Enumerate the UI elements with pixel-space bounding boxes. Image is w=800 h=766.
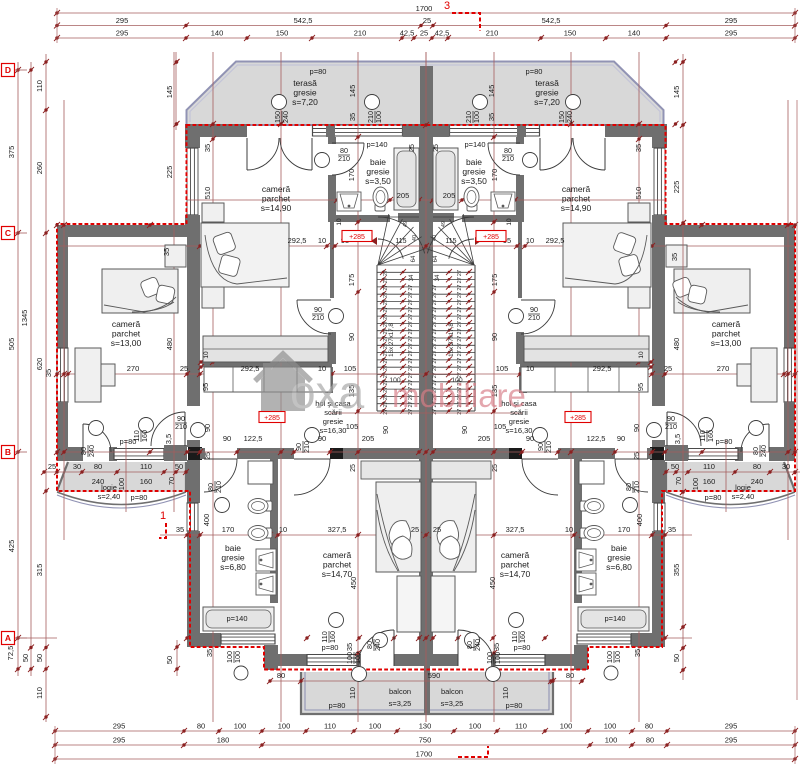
svg-text:25: 25 (350, 464, 357, 472)
svg-text:p=80: p=80 (514, 643, 531, 652)
svg-text:150: 150 (564, 29, 577, 38)
svg-text:27: 27 (383, 270, 389, 276)
svg-text:p=140: p=140 (366, 140, 387, 149)
svg-text:gresie: gresie (535, 88, 558, 98)
svg-text:480: 480 (672, 338, 681, 351)
svg-text:210: 210 (632, 481, 641, 493)
svg-text:80: 80 (645, 722, 653, 731)
svg-text:35: 35 (633, 649, 642, 657)
svg-text:s=14,70: s=14,70 (322, 569, 353, 579)
svg-text:80: 80 (646, 736, 654, 745)
svg-text:90: 90 (526, 434, 534, 443)
svg-text:327,5: 327,5 (506, 525, 525, 534)
svg-text:parchet: parchet (112, 329, 141, 339)
svg-text:25: 25 (433, 525, 441, 534)
svg-text:170: 170 (222, 525, 235, 534)
svg-text:150: 150 (276, 29, 289, 38)
svg-text:27: 27 (408, 365, 414, 371)
svg-text:210: 210 (354, 29, 367, 38)
svg-text:80: 80 (277, 671, 285, 680)
svg-text:27: 27 (408, 328, 414, 334)
svg-text:cameră: cameră (262, 184, 291, 194)
svg-text:s=14,70: s=14,70 (500, 569, 531, 579)
svg-text:40: 40 (432, 235, 438, 241)
svg-text:180: 180 (217, 736, 230, 745)
svg-text:parchet: parchet (323, 560, 352, 570)
svg-text:42,5: 42,5 (435, 29, 450, 38)
svg-text:C: C (5, 228, 11, 238)
svg-text:A: A (5, 633, 11, 643)
svg-text:90: 90 (203, 424, 212, 432)
svg-text:p=80: p=80 (329, 701, 346, 710)
svg-text:510: 510 (203, 187, 212, 200)
svg-text:40: 40 (412, 235, 418, 241)
svg-text:25: 25 (492, 464, 499, 472)
svg-text:205: 205 (443, 191, 456, 200)
svg-text:gresie: gresie (323, 417, 343, 426)
svg-text:205: 205 (478, 434, 491, 443)
svg-text:140: 140 (211, 29, 224, 38)
svg-text:27: 27 (457, 270, 463, 276)
svg-text:50: 50 (35, 654, 44, 662)
svg-text:100: 100 (234, 722, 247, 731)
svg-text:210: 210 (544, 441, 553, 453)
svg-text:27: 27 (408, 292, 414, 298)
svg-text:25: 25 (634, 452, 641, 460)
svg-text:50: 50 (672, 654, 681, 662)
svg-text:292,5: 292,5 (546, 236, 565, 245)
svg-text:27: 27 (432, 350, 438, 356)
svg-text:110: 110 (140, 462, 152, 471)
svg-text:542,5: 542,5 (542, 16, 561, 25)
svg-text:145: 145 (672, 86, 681, 99)
svg-text:70: 70 (674, 477, 683, 485)
svg-text:27: 27 (432, 285, 438, 291)
svg-text:35: 35 (162, 248, 171, 256)
svg-text:p=80: p=80 (322, 643, 339, 652)
svg-text:p=80: p=80 (526, 67, 543, 76)
svg-text:16x 27x17,8: 16x 27x17,8 (388, 323, 395, 357)
svg-text:50: 50 (671, 462, 679, 471)
svg-text:295: 295 (725, 736, 738, 745)
svg-text:160: 160 (703, 477, 716, 486)
svg-text:35: 35 (492, 643, 501, 651)
svg-text:240: 240 (751, 477, 764, 486)
svg-text:30: 30 (73, 462, 81, 471)
svg-text:34: 34 (435, 274, 441, 281)
svg-text:205: 205 (362, 434, 375, 443)
svg-text:27: 27 (457, 328, 463, 334)
svg-text:gresie: gresie (607, 553, 630, 563)
svg-text:s=7,20: s=7,20 (292, 97, 318, 107)
svg-text:110: 110 (35, 687, 44, 699)
svg-text:30: 30 (782, 462, 790, 471)
svg-text:327,5: 327,5 (328, 525, 347, 534)
svg-text:1700: 1700 (416, 750, 433, 759)
svg-text:240: 240 (373, 639, 382, 651)
svg-text:oxa: oxa (290, 366, 365, 418)
svg-text:27: 27 (457, 314, 463, 320)
svg-text:35: 35 (487, 113, 496, 121)
svg-text:210: 210 (175, 422, 187, 431)
svg-text:240: 240 (281, 111, 290, 123)
svg-text:1: 1 (160, 510, 166, 522)
svg-text:100: 100 (469, 722, 482, 731)
svg-text:375: 375 (7, 146, 16, 159)
svg-text:27: 27 (383, 379, 389, 385)
svg-text:210: 210 (312, 313, 324, 322)
svg-text:170: 170 (490, 169, 499, 182)
svg-text:27: 27 (457, 358, 463, 364)
svg-text:10: 10 (336, 218, 343, 226)
svg-text:100: 100 (117, 478, 126, 491)
svg-text:170: 170 (347, 169, 356, 182)
svg-text:64: 64 (433, 255, 439, 262)
svg-text:25: 25 (205, 452, 212, 460)
svg-text:90: 90 (632, 424, 641, 432)
svg-text:100: 100 (604, 722, 617, 731)
svg-text:s=3,25: s=3,25 (441, 699, 464, 708)
svg-text:27: 27 (432, 358, 438, 364)
svg-text:100: 100 (613, 651, 622, 663)
svg-text:145: 145 (487, 85, 496, 98)
svg-text:27: 27 (408, 358, 414, 364)
svg-text:100: 100 (374, 111, 383, 123)
svg-text:240: 240 (759, 445, 768, 457)
svg-text:175: 175 (347, 274, 356, 287)
svg-text:35: 35 (345, 643, 354, 651)
svg-text:s=13,00: s=13,00 (711, 338, 742, 348)
svg-text:80: 80 (197, 722, 205, 731)
svg-text:27: 27 (383, 365, 389, 371)
svg-text:25: 25 (411, 525, 419, 534)
svg-text:105: 105 (496, 364, 509, 373)
svg-text:80: 80 (94, 462, 102, 471)
svg-text:1700: 1700 (416, 4, 433, 13)
svg-text:590: 590 (428, 671, 441, 680)
svg-text:292,5: 292,5 (288, 236, 307, 245)
svg-text:50: 50 (165, 656, 174, 664)
svg-text:140: 140 (628, 29, 641, 38)
svg-text:27: 27 (383, 401, 389, 407)
svg-text:parchet: parchet (262, 194, 291, 204)
svg-text:25: 25 (180, 364, 188, 373)
svg-text:25: 25 (423, 16, 431, 25)
svg-text:90: 90 (460, 426, 469, 434)
svg-text:cameră: cameră (112, 319, 141, 329)
svg-text:100: 100 (691, 478, 700, 491)
svg-text:72,5: 72,5 (6, 646, 15, 661)
svg-text:35: 35 (348, 113, 357, 121)
svg-text:s=14,90: s=14,90 (561, 203, 592, 213)
svg-text:10: 10 (565, 525, 573, 534)
svg-text:105: 105 (494, 422, 507, 431)
svg-text:3,5: 3,5 (673, 434, 682, 444)
svg-text:95: 95 (201, 383, 210, 391)
svg-text:240: 240 (565, 111, 574, 123)
svg-text:27: 27 (383, 358, 389, 364)
svg-text:225: 225 (165, 166, 174, 179)
svg-text:35: 35 (44, 369, 53, 377)
svg-text:90: 90 (318, 434, 326, 443)
svg-text:425: 425 (7, 540, 16, 553)
svg-text:260: 260 (35, 162, 44, 175)
svg-text:27: 27 (432, 299, 438, 305)
svg-text:95: 95 (636, 383, 645, 391)
svg-text:210: 210 (486, 29, 499, 38)
svg-text:70: 70 (167, 477, 176, 485)
svg-text:25: 25 (664, 364, 672, 373)
svg-text:baie: baie (370, 157, 386, 167)
svg-text:27: 27 (383, 387, 389, 393)
svg-text:mobiliare: mobiliare (392, 377, 526, 414)
svg-text:16x 27x17,8: 16x 27x17,8 (448, 323, 455, 357)
svg-text:25: 25 (433, 144, 440, 152)
svg-text:logie: logie (735, 483, 751, 492)
svg-text:cameră: cameră (562, 184, 591, 194)
svg-text:100: 100 (278, 722, 291, 731)
svg-text:100: 100 (233, 651, 242, 663)
svg-text:295: 295 (725, 16, 738, 25)
svg-text:100: 100 (493, 652, 502, 664)
svg-text:10: 10 (506, 218, 513, 226)
svg-text:35: 35 (205, 649, 214, 657)
svg-text:10: 10 (526, 364, 534, 373)
svg-text:p=80: p=80 (506, 701, 523, 710)
svg-text:210: 210 (338, 154, 350, 163)
svg-text:25: 25 (48, 462, 56, 471)
svg-text:terasă: terasă (293, 78, 317, 88)
svg-text:balcon: balcon (389, 687, 411, 696)
svg-text:80: 80 (566, 671, 574, 680)
svg-text:205: 205 (397, 191, 410, 200)
svg-text:210: 210 (214, 481, 223, 493)
svg-text:27: 27 (457, 350, 463, 356)
svg-text:130: 130 (419, 722, 432, 731)
svg-text:110: 110 (515, 722, 527, 731)
svg-text:110: 110 (35, 80, 44, 92)
svg-text:s=6,80: s=6,80 (606, 562, 632, 572)
svg-text:270: 270 (127, 364, 140, 373)
svg-text:49: 49 (403, 221, 409, 227)
svg-text:27: 27 (383, 306, 389, 312)
svg-text:B: B (5, 447, 11, 457)
svg-text:42,5: 42,5 (400, 29, 415, 38)
svg-text:115: 115 (395, 238, 406, 245)
svg-text:620: 620 (35, 358, 44, 371)
svg-text:27: 27 (408, 321, 414, 327)
svg-text:cameră: cameră (501, 550, 530, 560)
svg-text:27: 27 (383, 394, 389, 400)
svg-text:p=80: p=80 (705, 493, 722, 502)
svg-text:295: 295 (725, 29, 738, 38)
svg-text:400: 400 (202, 514, 211, 527)
svg-text:80: 80 (753, 462, 761, 471)
svg-text:510: 510 (634, 187, 643, 200)
svg-text:27: 27 (408, 306, 414, 312)
svg-text:27: 27 (457, 336, 463, 342)
svg-text:27: 27 (457, 321, 463, 327)
svg-text:355: 355 (672, 564, 681, 577)
svg-text:+285: +285 (483, 234, 499, 241)
svg-text:25: 25 (409, 144, 416, 152)
svg-text:gresie: gresie (509, 417, 529, 426)
svg-text:27: 27 (457, 285, 463, 291)
svg-text:3: 3 (444, 0, 450, 12)
svg-text:27: 27 (457, 292, 463, 298)
svg-text:27: 27 (383, 292, 389, 298)
svg-text:160: 160 (328, 631, 337, 643)
svg-text:160: 160 (140, 477, 153, 486)
svg-text:750: 750 (419, 736, 432, 745)
svg-text:100: 100 (605, 736, 618, 745)
svg-text:292,5: 292,5 (593, 364, 612, 373)
svg-text:64: 64 (411, 255, 417, 262)
svg-text:210: 210 (302, 441, 311, 453)
svg-text:292,5: 292,5 (241, 364, 260, 373)
svg-text:542,5: 542,5 (294, 16, 313, 25)
svg-text:50: 50 (21, 654, 30, 662)
svg-text:100: 100 (472, 111, 481, 123)
svg-text:35: 35 (668, 525, 676, 534)
svg-text:27: 27 (432, 321, 438, 327)
svg-text:27: 27 (383, 299, 389, 305)
svg-text:baie: baie (611, 543, 627, 553)
svg-text:27: 27 (457, 343, 463, 349)
svg-text:p=80: p=80 (131, 493, 148, 502)
svg-text:122,5: 122,5 (244, 434, 263, 443)
svg-text:p=140: p=140 (464, 140, 485, 149)
svg-text:50: 50 (175, 462, 183, 471)
svg-text:27: 27 (457, 299, 463, 305)
svg-text:145: 145 (165, 86, 174, 99)
svg-text:35: 35 (634, 144, 643, 152)
svg-text:+285: +285 (570, 415, 586, 422)
svg-text:27: 27 (383, 314, 389, 320)
svg-text:cameră: cameră (323, 550, 352, 560)
svg-text:170: 170 (618, 525, 631, 534)
svg-text:parchet: parchet (712, 329, 741, 339)
svg-text:210: 210 (528, 313, 540, 322)
svg-text:210: 210 (665, 422, 677, 431)
svg-text:90: 90 (347, 333, 356, 341)
svg-text:gresie: gresie (221, 553, 244, 563)
svg-text:35: 35 (670, 253, 679, 261)
svg-text:160: 160 (518, 631, 527, 643)
svg-text:27: 27 (383, 372, 389, 378)
svg-text:27: 27 (383, 285, 389, 291)
svg-text:110: 110 (703, 462, 715, 471)
svg-text:balcon: balcon (441, 687, 463, 696)
svg-text:3,5: 3,5 (164, 434, 173, 444)
svg-text:p=140: p=140 (604, 614, 625, 623)
svg-text:240: 240 (473, 639, 482, 651)
svg-text:s=2,40: s=2,40 (732, 492, 755, 501)
svg-text:+285: +285 (349, 234, 365, 241)
svg-text:90: 90 (490, 333, 499, 341)
svg-text:160: 160 (140, 430, 149, 442)
svg-text:27: 27 (408, 343, 414, 349)
svg-text:p=80: p=80 (310, 67, 327, 76)
svg-text:s=13,00: s=13,00 (111, 338, 142, 348)
svg-text:240: 240 (92, 477, 105, 486)
svg-text:295: 295 (116, 16, 129, 25)
svg-text:210: 210 (502, 154, 514, 163)
svg-text:35: 35 (176, 525, 184, 534)
svg-text:+285: +285 (264, 415, 280, 422)
svg-text:baie: baie (466, 157, 482, 167)
svg-text:27: 27 (408, 299, 414, 305)
svg-text:27: 27 (408, 336, 414, 342)
svg-text:27: 27 (457, 306, 463, 312)
svg-text:27: 27 (432, 306, 438, 312)
svg-text:122,5: 122,5 (587, 434, 606, 443)
svg-text:100: 100 (369, 722, 382, 731)
svg-text:cameră: cameră (712, 319, 741, 329)
svg-text:27: 27 (457, 365, 463, 371)
svg-text:p=140: p=140 (226, 614, 247, 623)
svg-text:10: 10 (526, 236, 534, 245)
svg-text:27: 27 (432, 292, 438, 298)
svg-text:gresie: gresie (293, 88, 316, 98)
svg-text:90: 90 (381, 426, 390, 434)
svg-text:27: 27 (432, 314, 438, 320)
svg-text:27: 27 (432, 328, 438, 334)
svg-text:25: 25 (420, 29, 428, 38)
svg-text:295: 295 (116, 29, 129, 38)
svg-text:270: 270 (717, 364, 730, 373)
svg-text:27: 27 (383, 409, 389, 415)
svg-text:225: 225 (672, 181, 681, 194)
svg-text:27: 27 (457, 277, 463, 283)
svg-text:450: 450 (349, 577, 358, 590)
svg-text:s=7,20: s=7,20 (534, 97, 560, 107)
svg-text:s=3,50: s=3,50 (365, 176, 391, 186)
svg-text:90: 90 (223, 434, 231, 443)
svg-text:27: 27 (408, 314, 414, 320)
svg-text:100: 100 (560, 722, 573, 731)
svg-text:175: 175 (490, 274, 499, 287)
svg-text:10: 10 (279, 525, 287, 534)
svg-text:10: 10 (638, 351, 645, 359)
svg-text:110: 110 (501, 687, 510, 699)
svg-text:gresie: gresie (366, 167, 389, 177)
svg-text:295: 295 (113, 722, 126, 731)
svg-text:s=3,25: s=3,25 (389, 699, 412, 708)
svg-text:480: 480 (165, 338, 174, 351)
svg-text:27: 27 (383, 277, 389, 283)
svg-text:D: D (5, 65, 11, 75)
svg-text:110: 110 (324, 722, 336, 731)
svg-text:49: 49 (441, 221, 447, 227)
svg-text:parchet: parchet (501, 560, 530, 570)
svg-text:27: 27 (432, 336, 438, 342)
svg-text:gresie: gresie (462, 167, 485, 177)
svg-text:p=80: p=80 (716, 437, 733, 446)
svg-text:s=3,50: s=3,50 (461, 176, 487, 186)
svg-text:450: 450 (488, 577, 497, 590)
svg-text:240: 240 (87, 445, 96, 457)
svg-text:295: 295 (113, 736, 126, 745)
svg-text:s=2,40: s=2,40 (98, 492, 121, 501)
svg-text:34: 34 (409, 274, 415, 281)
svg-text:145: 145 (348, 85, 357, 98)
svg-text:27: 27 (432, 365, 438, 371)
svg-text:parchet: parchet (562, 194, 591, 204)
svg-text:35: 35 (203, 144, 212, 152)
svg-text:400: 400 (635, 514, 644, 527)
svg-text:160: 160 (706, 430, 715, 442)
